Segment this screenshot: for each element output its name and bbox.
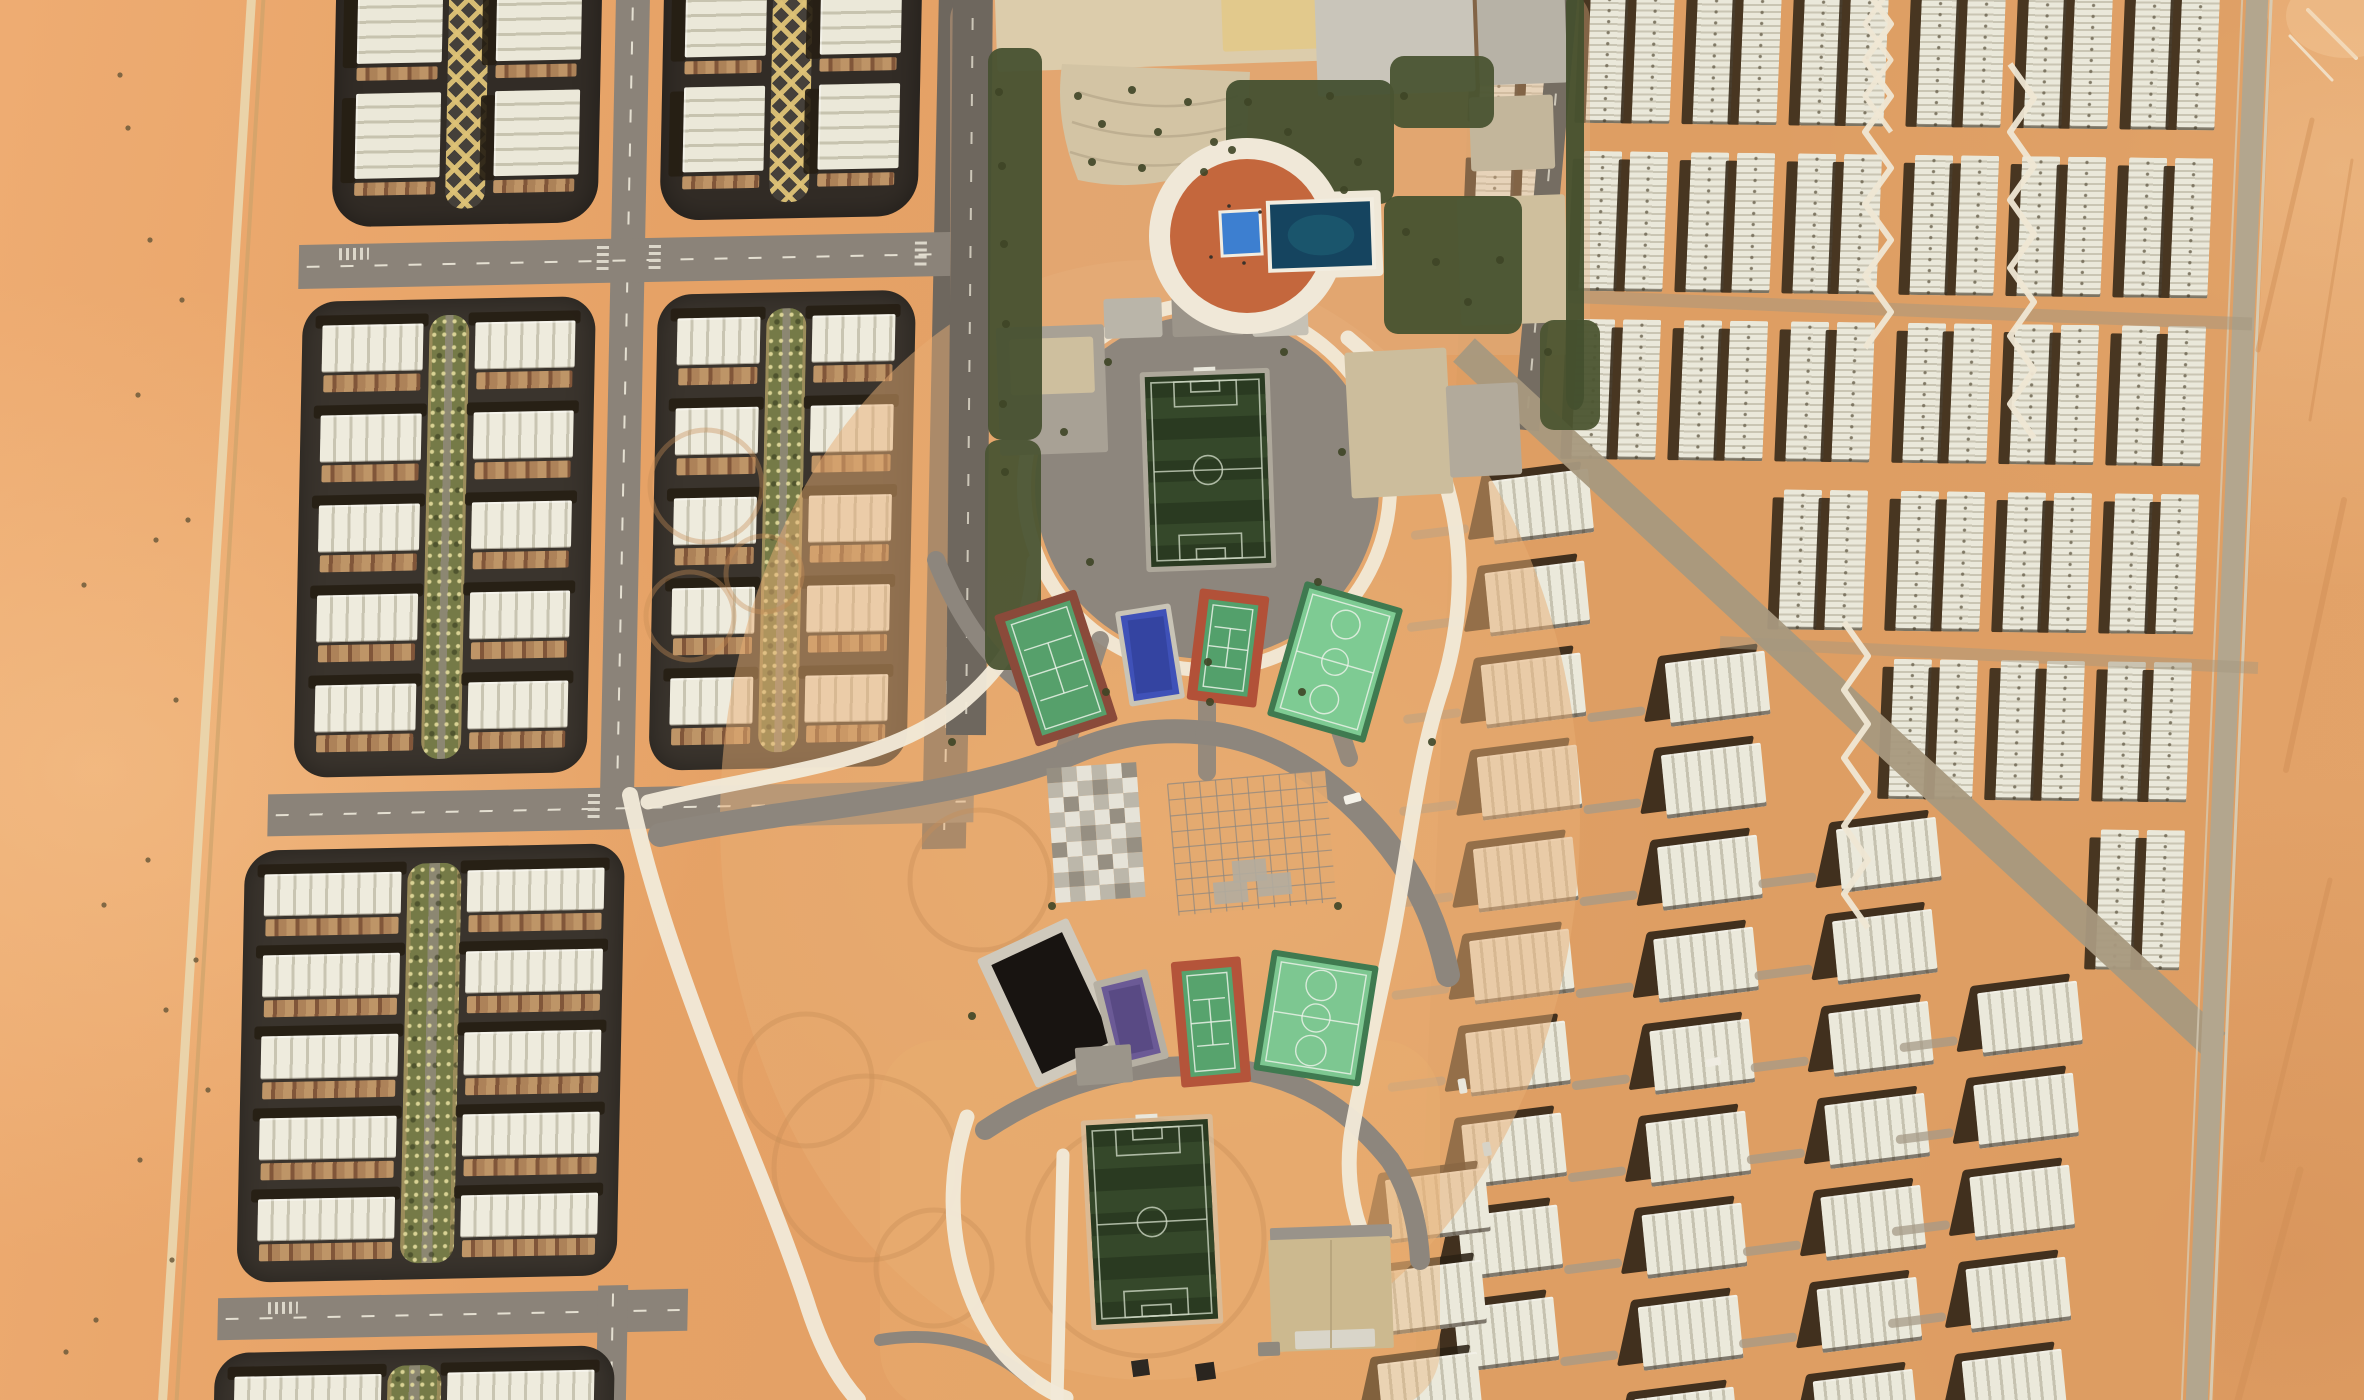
rowhouse-building (1653, 927, 1759, 1003)
barracks-building (1824, 490, 1868, 630)
barracks-building (1624, 151, 1668, 291)
rowhouse-building (1969, 1165, 2075, 1241)
rowhouse-building (1638, 1295, 1744, 1371)
rowhouse-building (1642, 1203, 1748, 1279)
barracks-building (1948, 323, 1992, 463)
barracks-building (2055, 325, 2099, 465)
driveway-stub (1307, 1223, 1366, 1239)
barracks-building (1724, 321, 1768, 461)
rowhouse-building (1645, 1111, 1751, 1187)
satellite-map-view (0, 0, 2364, 1400)
barracks-building (2169, 158, 2213, 298)
rowhouse-building (1465, 1020, 1571, 1096)
rowhouse-building (1973, 1073, 2079, 1149)
barracks-building (1738, 0, 1782, 125)
rowhouse-building (1385, 1168, 1491, 1244)
rowhouse-building (1661, 743, 1767, 819)
barracks-building (2062, 157, 2106, 297)
barracks-building (1517, 150, 1561, 290)
barracks-building (2048, 493, 2092, 633)
rowhouse-building (1481, 652, 1587, 728)
rowhouse-building (1473, 836, 1579, 912)
rowhouse-building (1836, 817, 1942, 893)
barracks-building (1617, 319, 1661, 459)
barracks-building (1845, 0, 1889, 126)
barracks-building (1524, 0, 1568, 123)
barracks-building (2176, 0, 2220, 130)
barracks-building (1934, 659, 1978, 799)
rowhouse-building (1469, 928, 1575, 1004)
rowhouse-building (1665, 651, 1771, 727)
barracks-building (2162, 326, 2206, 466)
rowhouse-building (1484, 560, 1590, 636)
rowhouse-building (1381, 1260, 1487, 1336)
rowhouse-building (1832, 909, 1938, 985)
rowhouse-building (1965, 1257, 2071, 1333)
barracks-building (2141, 830, 2185, 970)
barracks-building (1731, 153, 1775, 293)
rowhouse-building (1649, 1019, 1755, 1095)
right-residential-zone (0, 0, 2364, 1400)
rowhouse-building (1477, 744, 1583, 820)
driveway-stub (1303, 1315, 1362, 1331)
barracks-building (1955, 155, 1999, 295)
barracks-building (2148, 662, 2192, 802)
rowhouse-building (1817, 1277, 1923, 1353)
rowhouse-building (1828, 1001, 1934, 1077)
barracks-building (2041, 661, 2085, 801)
rowhouse-building (1977, 981, 2083, 1057)
rowhouse-building (1657, 835, 1763, 911)
rowhouse-building (1824, 1093, 1930, 1169)
barracks-building (2069, 0, 2113, 129)
rowhouse-building (1488, 468, 1594, 544)
barracks-building (1631, 0, 1675, 124)
barracks-building (1941, 491, 1985, 631)
barracks-building (1962, 0, 2006, 128)
rowhouse-building (1820, 1185, 1926, 1261)
barracks-building (2155, 494, 2199, 634)
barracks-building (1838, 154, 1882, 294)
barracks-building (1831, 322, 1875, 462)
